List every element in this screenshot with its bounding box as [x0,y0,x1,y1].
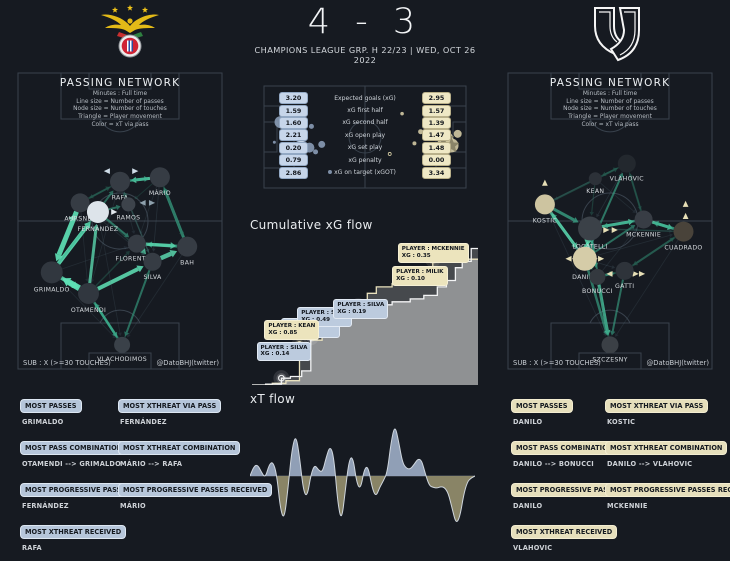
badge-label: MOST XTHREAT COMBINATION [118,441,240,455]
badge-value: KOSTIC [607,418,705,426]
badge-most-xthreat-via-pass: MOST XTHREAT VIA PASS FERNÁNDEZ [118,393,218,426]
stat-label: xG first half [313,107,417,114]
badge-value: RAFA [22,544,120,552]
benfica-goal-chip: PLAYER : SILVAXG : 0.19 [333,299,388,319]
sub-note: SUB : X (>=30 TOUCHES) [23,359,111,367]
player-node [128,235,146,253]
cumulative-xg-title: Cumulative xG flow [250,218,373,232]
badge-most-passes: MOST PASSES DANILO [511,393,611,426]
badge-most-progressive-passes: MOST PROGRESSIVE PASSES FERNÁNDEZ [20,477,120,510]
pass-edge [93,186,111,196]
player-label: KEAN [586,188,604,195]
pass-arrowhead [590,212,594,216]
player-label: BAH [180,260,194,267]
pass-arrowhead [144,176,149,182]
player-node [589,269,605,285]
pass-edge [558,182,590,198]
badge-label: MOST PASS COMBINATION [511,441,618,455]
badge-most-pass-combination: MOST PASS COMBINATION DANILO --> BONUCCI [511,435,611,468]
player-label: OTAMENDI [71,307,106,314]
player-node [618,155,636,173]
stat-label: xG set play [313,144,417,151]
badge-value: DANILO [513,502,611,510]
juventus-badges-col1: MOST PASSES DANILO MOST PASS COMBINATION… [511,393,611,561]
panel-title: PASSING NETWORK [15,77,225,89]
player-label: KOSTIC [533,217,557,224]
badge-value: DANILO --> VLAHOVIC [607,460,705,468]
competition-line: CHAMPIONS LEAGUE GRP. H 22/23 | WED, OCT… [245,45,485,65]
pass-arrowhead [118,332,122,336]
panel-footer: SUB : X (>=30 TOUCHES) @DatoBHJ(twitter) [513,359,709,367]
badge-value: DANILO [513,418,611,426]
player-node [71,193,90,212]
sub-note: SUB : X (>=30 TOUCHES) [513,359,601,367]
panel-header: PASSING NETWORK Minutes : Full time Line… [15,77,225,129]
badge-most-pass-combination: MOST PASS COMBINATION OTAMENDI --> GRIMA… [20,435,120,468]
movement-triangle [598,256,604,262]
stat-row: 2.21 xG open play 1.47 [252,129,478,141]
badge-value: GRIMALDO [22,418,120,426]
pass-arrowhead [610,331,615,336]
away-stat-value: 1.39 [422,117,451,129]
pass-edge [161,254,171,258]
badge-value: OTAMENDI --> GRIMALDO [22,460,120,468]
home-stat-value: 1.60 [279,117,308,129]
pass-edge [130,179,144,181]
credit-handle: @DatoBHJ(twitter) [156,359,219,367]
panel-title: PASSING NETWORK [505,77,715,89]
xt-flow-chart [250,410,475,535]
player-label: MÁRIO [149,188,171,197]
player-label: CUADRADO [664,245,702,252]
home-stat-value: 2.21 [279,129,308,141]
movement-triangle [683,213,689,219]
panel-legend: Minutes : Full time Line size = Number o… [505,91,715,129]
movement-triangle [542,180,548,186]
juventus-goal-chip: PLAYER : MILIKXG : 0.10 [392,266,447,286]
badge-most-passes: MOST PASSES GRIMALDO [20,393,120,426]
player-node [589,172,602,185]
home-stat-value: 1.59 [279,105,308,117]
stat-label: xG on target (xGOT) [313,169,417,176]
player-node [41,261,63,283]
badge-label: MOST PASSES [511,399,573,413]
home-stat-value: 2.86 [279,167,308,179]
benfica-goal-chip: PLAYER : SILVAXG : 0.14 [257,342,312,362]
home-stat-value: 0.20 [279,142,308,154]
credit-handle: @DatoBHJ(twitter) [646,359,709,367]
stat-row: 1.60 xG second half 1.39 [252,117,478,129]
panel-legend: Minutes : Full time Line size = Number o… [15,91,225,129]
away-stat-value: 1.47 [422,129,451,141]
stat-row: 3.20 Expected goals (xG) 2.95 [252,92,478,104]
badge-most-progressive-passes-received: MOST PROGRESSIVE PASSES RECEIVED MÁRIO [118,477,218,510]
badge-label: MOST XTHREAT VIA PASS [118,399,221,413]
xg-stats-table: 3.20 Expected goals (xG) 2.95 1.59 xG fi… [252,92,478,179]
player-node [674,222,694,242]
movement-triangle [683,201,689,207]
badge-label: MOST XTHREAT RECEIVED [511,525,617,539]
badge-most-progressive-passes-received: MOST PROGRESSIVE PASSES RECEIVED MCKENNI… [605,477,705,510]
player-label: BONUCCI [582,288,613,295]
pass-arrowhead [152,248,156,251]
cumulative-xg-chart: PLAYER : SILVAXG : 0.14PLAYER : MÁRIOXG … [252,240,478,385]
pass-arrowhead [170,242,176,249]
pass-arrowhead [131,230,135,234]
badge-value: FERNÁNDEZ [22,502,120,510]
badge-value: FERNÁNDEZ [120,418,218,426]
player-node [177,237,197,257]
badge-label: MOST PROGRESSIVE PASSES RECEIVED [605,483,730,497]
stat-row: 0.79 xG penalty 0.00 [252,154,478,166]
pass-arrowhead [669,229,672,233]
player-label: RAMOS [116,214,140,221]
stat-row: 2.86 xG on target (xGOT) 3.34 [252,166,478,178]
juventus-goal-chip: PLAYER : KEANXG : 0.85 [264,320,319,340]
badge-label: MOST XTHREAT VIA PASS [605,399,708,413]
badge-most-xthreat-combination: MOST XTHREAT COMBINATION DANILO --> VLAH… [605,435,705,468]
pass-arrowhead [669,233,673,237]
juventus-badges-col2: MOST XTHREAT VIA PASS KOSTIC MOST XTHREA… [605,393,705,519]
player-node [573,247,597,271]
badge-value: MCKENNIE [607,502,705,510]
home-stat-value: 0.79 [279,154,308,166]
player-label: GATTI [615,283,634,290]
player-node [602,336,619,353]
movement-triangle [639,271,645,277]
home-stat-value: 3.20 [279,92,308,104]
xt-negative-area [250,429,475,522]
badge-label: MOST PROGRESSIVE PASSES RECEIVED [118,483,272,497]
pass-edge [596,262,612,267]
player-node [616,262,634,280]
away-stat-value: 3.34 [422,167,451,179]
panel-header: PASSING NETWORK Minutes : Full time Line… [505,77,715,129]
stat-label: xG penalty [313,157,417,164]
badge-label: MOST XTHREAT RECEIVED [20,525,126,539]
pass-edge [146,244,171,245]
stat-label: xG second half [313,119,417,126]
player-label: FERNÁNDEZ [78,224,119,233]
away-stat-value: 2.95 [422,92,451,104]
badge-label: MOST XTHREAT COMBINATION [605,441,727,455]
scoreline: 4 - 3 CHAMPIONS LEAGUE GRP. H 22/23 | WE… [245,2,485,65]
benfica-passing-network-panel: RAFAMÁRIOAURSNESRAMOSFERNÁNDEZGRIMALDOBA… [15,70,225,372]
player-node [114,337,130,353]
goal-marker-halo [276,373,286,383]
player-node [535,194,555,214]
badge-label: MOST PASS COMBINATION [20,441,127,455]
pass-edge [606,168,619,174]
badge-most-xthreat-combination: MOST XTHREAT COMBINATION MÁRIO --> RAFA [118,435,218,468]
pass-edge [98,269,138,289]
stat-row: 0.20 xG set play 1.48 [252,142,478,154]
juventus-goal-chip: PLAYER : MCKENNIEXG : 0.35 [398,243,469,263]
player-node [78,283,99,304]
xt-flow-title: xT flow [250,392,295,406]
player-node [121,197,135,211]
player-node [87,201,109,223]
benfica-badges-col2: MOST XTHREAT VIA PASS FERNÁNDEZ MOST XTH… [118,393,218,519]
benfica-crest-icon [97,3,163,63]
stat-row: 1.59 xG first half 1.57 [252,104,478,116]
pass-edge [658,224,674,229]
pass-arrowhead [116,205,121,210]
juventus-passing-network-panel: KEANVLAHOVICKOSTICLOCATELLIMCKENNIECUADR… [505,70,715,372]
movement-triangle [132,168,138,174]
movement-triangle [612,227,618,233]
player-node [110,172,130,192]
badge-most-xthreat-received: MOST XTHREAT RECEIVED VLAHOVIC [511,519,611,552]
panel-footer: SUB : X (>=30 TOUCHES) @DatoBHJ(twitter) [23,359,219,367]
movement-triangle [565,256,571,262]
player-label: GRIMALDO [34,286,70,293]
player-label: VLAHOVIC [610,176,644,183]
player-node [150,167,170,187]
stat-label: xG open play [313,132,417,139]
pass-edge [125,275,148,338]
match-report-infographic: { "header": { "score": "4 - 3", "competi… [0,0,730,548]
badge-most-xthreat-received: MOST XTHREAT RECEIVED RAFA [20,519,120,552]
away-stat-value: 1.57 [422,105,451,117]
stat-label: Expected goals (xG) [313,95,417,102]
pass-edge [90,229,96,283]
badge-value: MÁRIO [120,502,218,510]
player-node [635,210,653,228]
badge-most-progressive-passes: MOST PROGRESSIVE PASSES DANILO [511,477,611,510]
badge-value: DANILO --> BONUCCI [513,460,611,468]
player-label: SILVA [144,274,163,281]
juventus-logo-icon [588,3,644,63]
badge-most-xthreat-via-pass: MOST XTHREAT VIA PASS KOSTIC [605,393,705,426]
player-node [578,217,602,241]
player-label: MCKENNIE [626,231,661,238]
badge-label: MOST PASSES [20,399,82,413]
player-node [144,253,162,271]
badge-value: VLAHOVIC [513,544,611,552]
badge-value: MÁRIO --> RAFA [120,460,218,468]
away-stat-value: 1.48 [422,142,451,154]
benfica-badges-col1: MOST PASSES GRIMALDO MOST PASS COMBINATI… [20,393,120,561]
match-score: 4 - 3 [245,2,485,42]
away-stat-value: 0.00 [422,154,451,166]
movement-triangle [104,168,110,174]
